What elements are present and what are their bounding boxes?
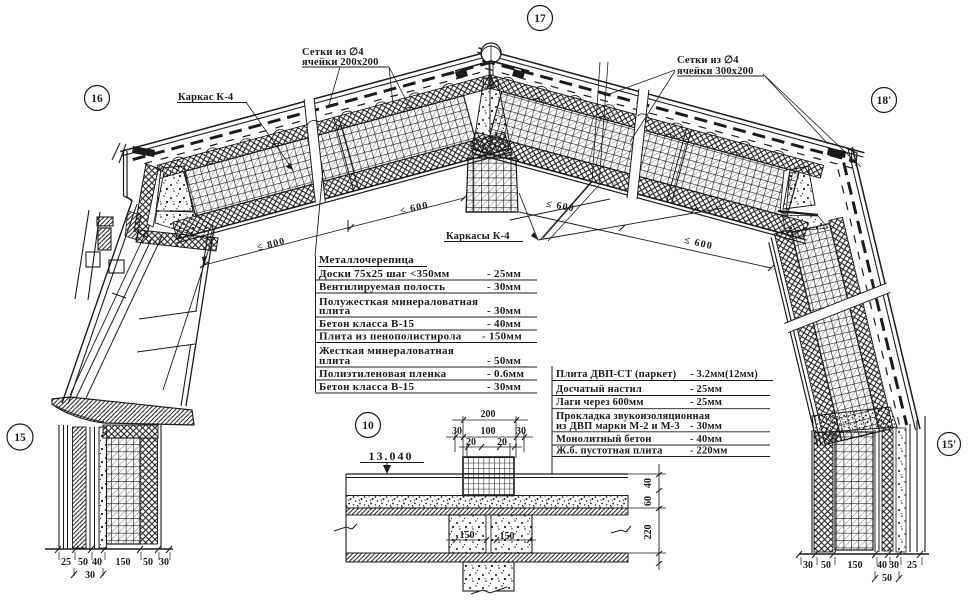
svg-text:60: 60	[643, 496, 654, 506]
svg-text:ячейки 300х200: ячейки 300х200	[677, 66, 754, 77]
svg-text:Бетон класса В-15: Бетон класса В-15	[319, 318, 414, 330]
svg-text:Досчатый настил: Досчатый настил	[556, 384, 642, 395]
svg-text:25: 25	[907, 560, 917, 571]
svg-text:150: 150	[116, 557, 131, 568]
svg-text:30: 30	[159, 557, 169, 568]
svg-text:30: 30	[803, 560, 813, 571]
svg-text:50: 50	[882, 573, 892, 584]
svg-text:Вентилируемая полость: Вентилируемая полость	[319, 281, 445, 293]
svg-text:Полиэтиленовая пленка: Полиэтиленовая пленка	[319, 368, 447, 380]
svg-text:30: 30	[516, 426, 526, 437]
svg-text:Каркас К-4: Каркас К-4	[178, 92, 234, 103]
svg-text:50: 50	[821, 560, 831, 571]
svg-text:Металлочерепица: Металлочерепица	[319, 254, 414, 266]
svg-text:Доски 75х25 шаг <350мм: Доски 75х25 шаг <350мм	[319, 268, 450, 280]
svg-text:- 0.6мм: - 0.6мм	[487, 368, 524, 380]
svg-text:Лаги через 600мм: Лаги через 600мм	[556, 397, 644, 408]
svg-text:Плита из пенополистирола: Плита из пенополистирола	[319, 331, 462, 343]
svg-text:- 3.2мм(12мм): - 3.2мм(12мм)	[690, 369, 758, 380]
svg-text:200: 200	[481, 409, 496, 420]
svg-text:30: 30	[85, 570, 95, 581]
svg-text:Монолитный бетон: Монолитный бетон	[556, 434, 652, 445]
svg-text:плита: плита	[319, 305, 351, 317]
svg-text:40: 40	[877, 560, 887, 571]
svg-text:40: 40	[92, 557, 102, 568]
svg-text:18': 18'	[877, 95, 892, 107]
svg-text:17: 17	[534, 13, 546, 25]
svg-text:Сетки из ∅4: Сетки из ∅4	[677, 54, 739, 66]
svg-text:220: 220	[643, 525, 654, 540]
svg-text:50: 50	[78, 557, 88, 568]
svg-text:20: 20	[497, 437, 507, 448]
svg-text:50: 50	[143, 557, 153, 568]
svg-text:- 25мм: - 25мм	[487, 268, 521, 280]
svg-text:- 220мм: - 220мм	[690, 446, 728, 457]
svg-text:Ж.б. пустотная плита: Ж.б. пустотная плита	[556, 446, 663, 457]
svg-text:- 30мм: - 30мм	[487, 381, 521, 393]
svg-text:- 40мм: - 40мм	[690, 434, 722, 445]
svg-text:из ДВП марки М-2 и М-3: из ДВП марки М-2 и М-3	[556, 421, 680, 432]
svg-text:Бетон класса В-15: Бетон класса В-15	[319, 381, 414, 393]
svg-text:13.040: 13.040	[369, 449, 414, 463]
svg-text:30: 30	[889, 560, 899, 571]
svg-text:30: 30	[452, 426, 462, 437]
svg-text:20: 20	[466, 437, 476, 448]
svg-text:Плита ДВП-СТ (паркет): Плита ДВП-СТ (паркет)	[556, 369, 677, 380]
svg-text:- 50мм: - 50мм	[487, 355, 521, 367]
svg-text:- 30мм: - 30мм	[690, 421, 722, 432]
svg-text:15': 15'	[942, 439, 957, 451]
svg-text:150: 150	[460, 530, 475, 541]
svg-text:150: 150	[848, 560, 863, 571]
svg-text:15: 15	[14, 432, 26, 444]
svg-text:ячейки 200х200: ячейки 200х200	[302, 57, 379, 68]
svg-text:плита: плита	[319, 355, 351, 367]
svg-text:10: 10	[362, 420, 374, 432]
svg-text:40: 40	[643, 478, 654, 488]
svg-text:- 30мм: - 30мм	[487, 305, 521, 317]
svg-text:- 25мм: - 25мм	[690, 384, 722, 395]
svg-text:100: 100	[481, 426, 496, 437]
svg-text:Каркасы К-4: Каркасы К-4	[446, 231, 510, 242]
svg-text:- 25мм: - 25мм	[690, 397, 722, 408]
svg-text:- 150мм: - 150мм	[482, 331, 522, 343]
svg-text:16: 16	[91, 93, 103, 105]
svg-text:- 30мм: - 30мм	[487, 281, 521, 293]
svg-text:25: 25	[61, 557, 71, 568]
svg-text:- 40мм: - 40мм	[487, 318, 521, 330]
